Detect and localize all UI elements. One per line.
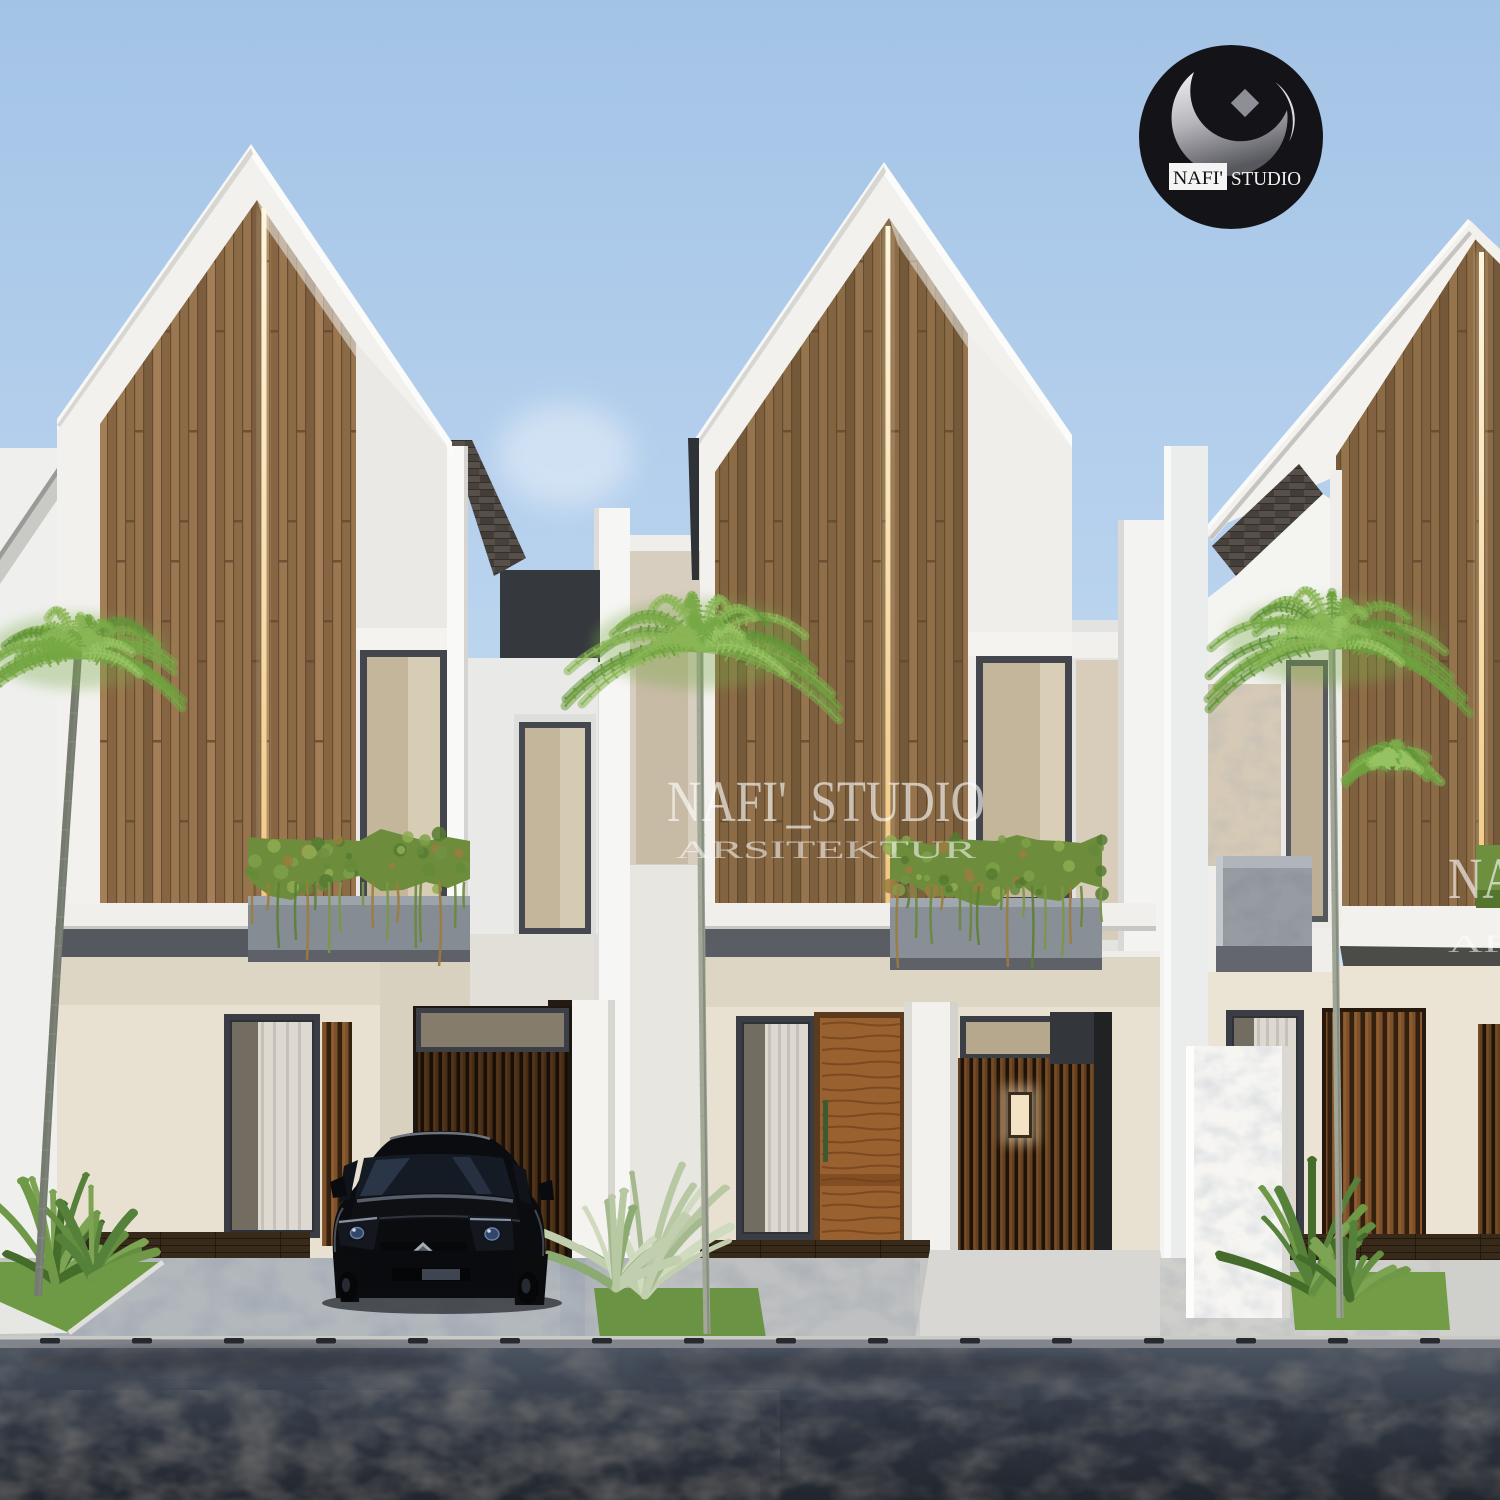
svg-text:ARSITEKTUR: ARSITEKTUR xyxy=(1448,931,1500,958)
svg-text:NAFI'_STUDIO: NAFI'_STUDIO xyxy=(667,769,985,834)
svg-text:NAFI': NAFI' xyxy=(1173,168,1223,189)
svg-text:NAFI'_STUDIO: NAFI'_STUDIO xyxy=(1448,846,1500,911)
svg-text:ARSITEKTUR: ARSITEKTUR xyxy=(676,837,977,864)
svg-text:STUDIO: STUDIO xyxy=(1231,168,1301,190)
